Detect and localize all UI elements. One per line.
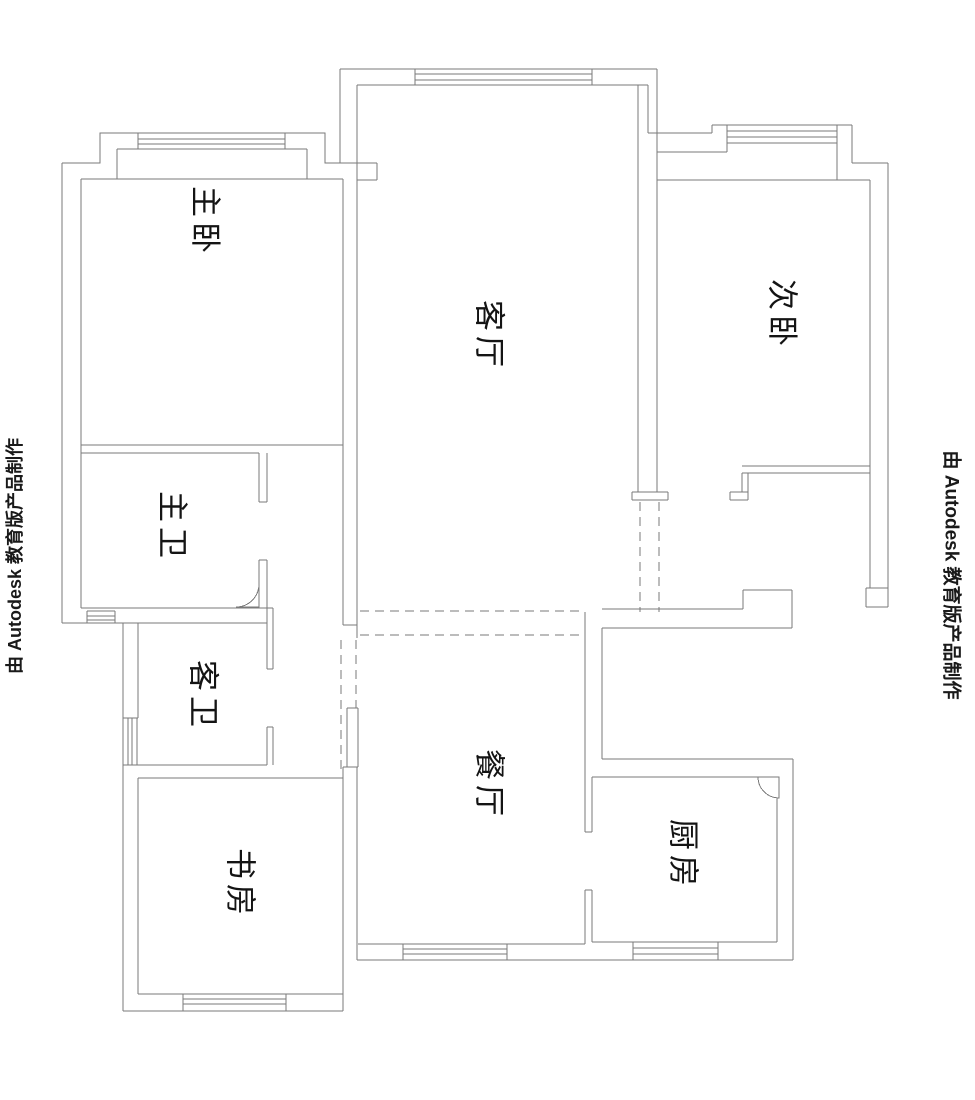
room-label-study: 书房 [225,848,256,920]
watermark-right: 由 Autodesk 教育版产品制作 [942,450,961,699]
room-label-living-room: 客厅 [474,300,505,372]
room-label-master-bathroom: 主卫 [157,491,188,563]
watermark-left: 由 Autodesk 教育版产品制作 [6,438,24,674]
kitchen-door-icon [758,777,779,798]
dashed-openings [341,502,659,775]
master-bath-door-icon [236,584,259,607]
room-label-master-bedroom: 主卧 [190,186,221,258]
floor-plan-drawing [0,0,975,1100]
door-swings [236,584,779,798]
room-label-guest-bathroom: 客卫 [188,660,219,732]
room-label-dining-room: 餐厅 [474,749,505,821]
room-label-kitchen: 厨房 [668,819,699,891]
floor-plan-canvas: 主卧 次卧 客厅 主卫 客卫 书房 餐厅 厨房 由 Autodesk 教育版产品… [0,0,975,1100]
room-label-second-bedroom: 次卧 [767,279,798,351]
